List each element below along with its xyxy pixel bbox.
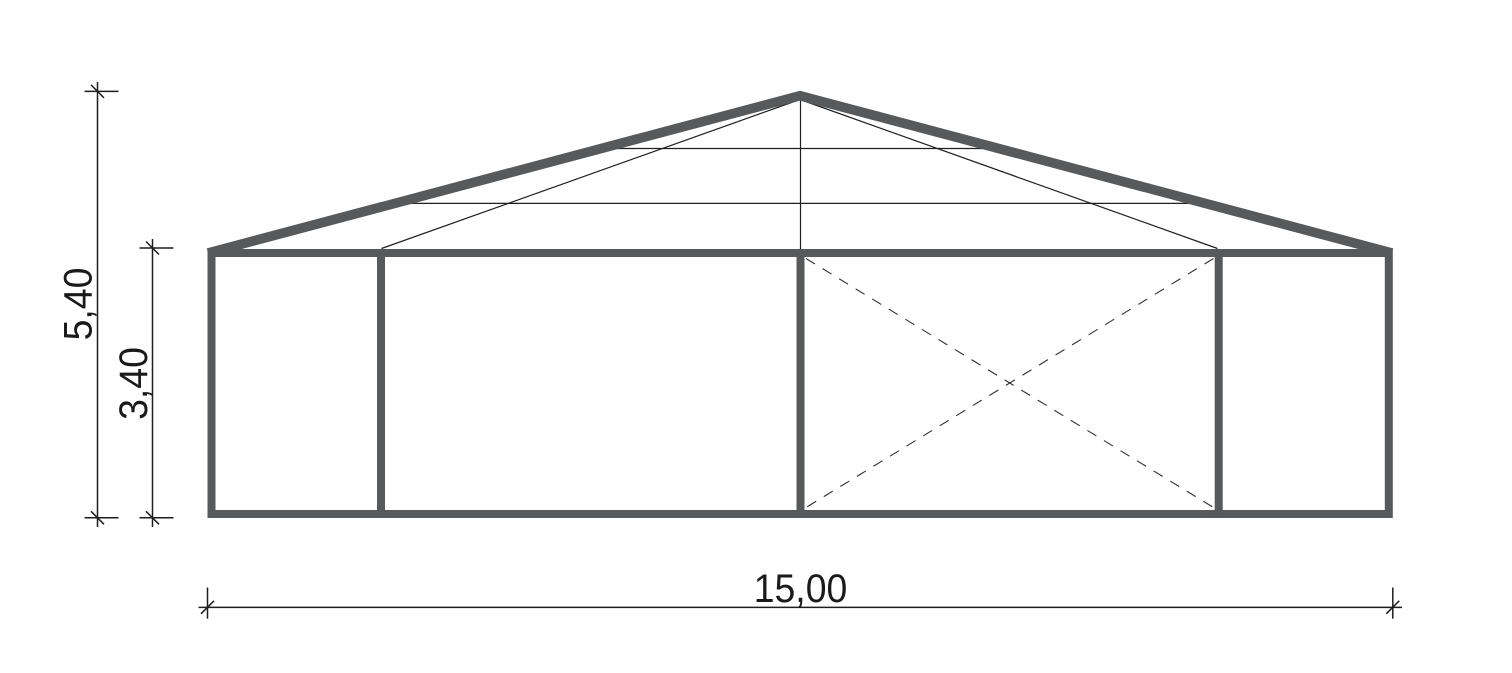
svg-text:15,00: 15,00 [754,567,848,611]
svg-text:3,40: 3,40 [112,347,156,420]
svg-text:5,40: 5,40 [56,268,100,341]
